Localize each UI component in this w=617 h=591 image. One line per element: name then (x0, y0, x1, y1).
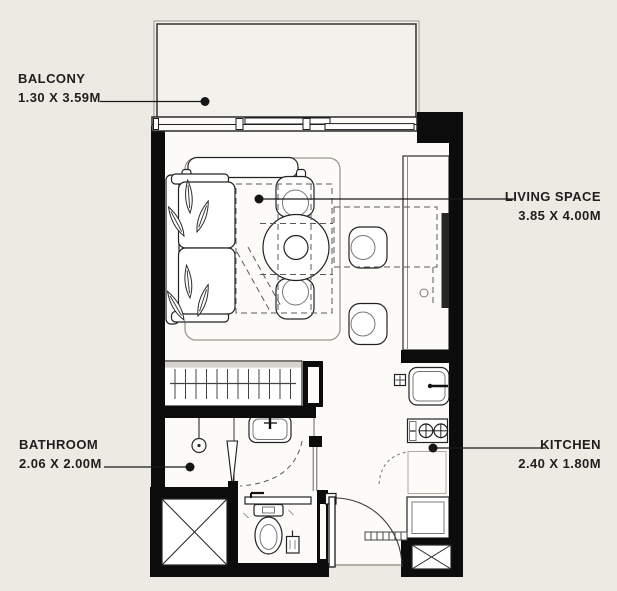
bathroom-label-name: BATHROOM (19, 435, 102, 454)
balcony-label: BALCONY 1.30 X 3.59M (18, 69, 101, 107)
balcony-label-name: BALCONY (18, 69, 101, 88)
tv-symbol (442, 213, 451, 308)
living-space-label: LIVING SPACE 3.85 X 4.00M (505, 187, 601, 225)
wall-slot (308, 367, 319, 403)
living-space-label-name: LIVING SPACE (505, 187, 601, 206)
kitchen-counter-symbol (403, 156, 450, 350)
floor-plan-page: BALCONY 1.30 X 3.59M LIVING SPACE 3.85 X… (0, 0, 617, 591)
bathroom-label-dimensions: 2.06 X 2.00M (19, 454, 102, 473)
balcony-leader-dot (201, 97, 210, 106)
bathroom-label: BATHROOM 2.06 X 2.00M (19, 435, 102, 473)
kitchen-sink-symbol (409, 368, 449, 406)
balcony-label-dimensions: 1.30 X 3.59M (18, 88, 101, 107)
kitchen-cabinet-symbol (407, 497, 449, 538)
entrance-door-leaf (329, 497, 335, 567)
kitchen-leader-dot (429, 444, 438, 453)
shaft-symbol (162, 499, 227, 565)
shaft-symbol (412, 545, 451, 569)
wall-slot (320, 504, 326, 559)
valve-symbol (395, 375, 406, 386)
balcony-area (154, 21, 419, 121)
door-mat (365, 532, 407, 540)
sliding-window-symbol (152, 117, 417, 131)
bathroom-leader-dot (186, 463, 195, 472)
stove-symbol (408, 419, 448, 443)
kitchen-label-name: KITCHEN (518, 435, 601, 454)
kitchen-label-dimensions: 2.40 X 1.80M (518, 454, 601, 473)
living-leader-dot (255, 195, 264, 204)
kitchen-label: KITCHEN 2.40 X 1.80M (518, 435, 601, 473)
living-space-label-dimensions: 3.85 X 4.00M (505, 206, 601, 225)
wardrobe-symbol (163, 361, 302, 406)
